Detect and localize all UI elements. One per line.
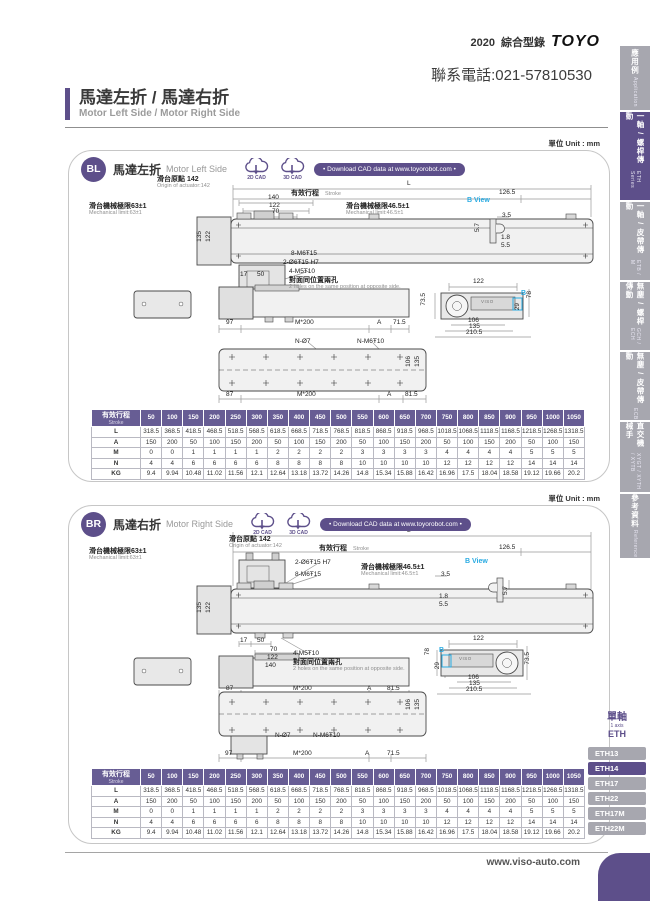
stroke-value: 50 <box>141 769 162 786</box>
dim-value: 718.5 <box>310 427 331 438</box>
dim-value: 10 <box>373 817 394 828</box>
dim-value: 100 <box>458 796 479 807</box>
stroke-value: 400 <box>288 410 309 427</box>
cad-2d-label: 2D CAD <box>253 530 272 536</box>
dim-value: 150 <box>225 796 246 807</box>
sidebar-tab-reference[interactable]: 參考資料 Reference <box>620 494 650 558</box>
dim-value: 968.5 <box>415 427 436 438</box>
dim-value: 200 <box>415 796 436 807</box>
page-title-en: Motor Left Side / Motor Right Side <box>79 108 240 120</box>
dim-value: 13.72 <box>310 828 331 839</box>
dim-value: 15.88 <box>394 828 415 839</box>
footer-divider <box>65 852 608 853</box>
table-row: KG9.49.9410.4811.0211.5612.112.6413.1813… <box>92 469 585 480</box>
row-label: N <box>92 458 141 469</box>
dim-value: 6 <box>183 458 204 469</box>
cad-3d-download[interactable]: 3D CAD <box>279 158 306 181</box>
dim-value: 200 <box>415 437 436 448</box>
dim-value: 100 <box>288 437 309 448</box>
panel-title-zh: 馬達左折 <box>113 161 161 178</box>
dim-value: 14 <box>563 817 584 828</box>
panel-title-zh: 馬達右折 <box>113 516 161 533</box>
dim-value: 50 <box>352 796 373 807</box>
corner-decoration <box>598 853 650 901</box>
dim-value: 12.1 <box>246 469 267 480</box>
dim-value: 0 <box>162 807 183 818</box>
cloud-download-icon <box>249 513 276 531</box>
stroke-value: 50 <box>141 410 162 427</box>
dim-value: 668.5 <box>288 427 309 438</box>
dim-value: 2 <box>310 448 331 459</box>
dim-value: 15.88 <box>394 469 415 480</box>
dim-value: 50 <box>436 796 457 807</box>
dim-value: 11.02 <box>204 469 225 480</box>
dim-value: 12 <box>500 458 521 469</box>
dim-value: 1318.5 <box>563 427 584 438</box>
contact-phone: 聯系電話:021-57810530 <box>431 64 592 85</box>
table-row: L318.5368.5418.5468.5518.5568.5618.5668.… <box>92 786 585 797</box>
panel-title-en: Motor Left Side <box>166 164 227 174</box>
dim-value: 150 <box>310 437 331 448</box>
dim-value: 2 <box>331 807 352 818</box>
dim-value: 4 <box>458 807 479 818</box>
series-item-eth22m[interactable]: ETH22M <box>588 822 646 835</box>
stroke-header: 有效行程Stroke <box>92 410 141 427</box>
dim-value: 8 <box>267 458 288 469</box>
stroke-value: 350 <box>267 769 288 786</box>
dim-value: 11.02 <box>204 828 225 839</box>
dim-value: 8 <box>288 458 309 469</box>
stroke-value: 750 <box>436 769 457 786</box>
dim-value: 12.64 <box>267 828 288 839</box>
dim-value: 14 <box>542 458 563 469</box>
cloud-download-icon <box>243 158 270 176</box>
cloud-download-icon <box>285 513 312 531</box>
dim-value: 200 <box>500 796 521 807</box>
dim-value: 18.04 <box>479 469 500 480</box>
dim-value: 10 <box>394 458 415 469</box>
dim-value: 1068.5 <box>458 427 479 438</box>
dim-value: 1118.5 <box>479 786 500 797</box>
dim-value: 200 <box>162 796 183 807</box>
dim-value: 568.5 <box>246 786 267 797</box>
dim-value: 200 <box>246 437 267 448</box>
dim-value: 4 <box>162 817 183 828</box>
catalog-page: 2020 綜合型錄 TOYO 聯系電話:021-57810530 馬達左折 / … <box>0 0 650 901</box>
cad-3d-download[interactable]: 3D CAD <box>285 513 312 536</box>
tab-label-zh: 參考資料 <box>630 494 641 528</box>
dim-value: 20.2 <box>563 469 584 480</box>
dim-value: 4 <box>162 458 183 469</box>
dim-value: 1218.5 <box>521 786 542 797</box>
dim-value: 11.56 <box>225 469 246 480</box>
dim-value: 2 <box>331 448 352 459</box>
dim-value: 4 <box>436 807 457 818</box>
website-url: www.viso-auto.com <box>420 857 580 868</box>
stroke-value: 300 <box>246 410 267 427</box>
dim-value: 200 <box>246 796 267 807</box>
dim-value: 4 <box>479 448 500 459</box>
dim-value: 4 <box>500 807 521 818</box>
dim-value: 150 <box>141 437 162 448</box>
stroke-value: 550 <box>352 769 373 786</box>
dim-value: 918.5 <box>394 786 415 797</box>
dim-value: 918.5 <box>394 427 415 438</box>
download-cad-pill[interactable]: • Download CAD data at www.toyorobot.com… <box>320 518 471 531</box>
tab-label-zh: 無塵 / 螺桿傳動 <box>624 282 646 326</box>
dim-value: 8 <box>331 817 352 828</box>
dim-value: 2 <box>267 448 288 459</box>
dim-value: 8 <box>331 458 352 469</box>
dim-value: 18.58 <box>500 828 521 839</box>
dim-value: 3 <box>373 807 394 818</box>
stroke-value: 500 <box>331 769 352 786</box>
dim-value: 6 <box>225 817 246 828</box>
dim-value: 1 <box>183 448 204 459</box>
dim-value: 718.5 <box>310 786 331 797</box>
dim-value: 150 <box>563 437 584 448</box>
dim-value: 100 <box>373 796 394 807</box>
dim-value: 13.72 <box>310 469 331 480</box>
tab-label-en: ETB / M <box>629 260 641 280</box>
dim-value: 5 <box>563 807 584 818</box>
dim-value: 11.56 <box>225 828 246 839</box>
br-stroke-table: 有效行程Stroke501001502002503003504004505005… <box>91 768 585 839</box>
dim-value: 8 <box>288 817 309 828</box>
table-row: N44666688881010101012121212141414 <box>92 458 585 469</box>
stroke-value: 800 <box>458 410 479 427</box>
dim-value: 13.18 <box>288 469 309 480</box>
series-item-eth22[interactable]: ETH22 <box>588 792 646 805</box>
catalog-title: 綜合型錄 <box>501 34 545 50</box>
stroke-value: 450 <box>310 769 331 786</box>
dim-value: 8 <box>310 458 331 469</box>
row-label: L <box>92 786 141 797</box>
dim-value: 1268.5 <box>542 786 563 797</box>
tab-label-en: XYGT / XYTH / XYTB <box>629 453 641 492</box>
dim-value: 10 <box>373 458 394 469</box>
row-label: M <box>92 448 141 459</box>
dim-value: 16.96 <box>436 469 457 480</box>
stroke-value: 850 <box>479 410 500 427</box>
br-badge: BR <box>81 512 106 537</box>
dim-value: 6 <box>183 817 204 828</box>
dim-value: 200 <box>331 796 352 807</box>
title-divider <box>65 127 608 128</box>
sidebar-tab-gch-ech[interactable]: 無塵 / 螺桿傳動 GCH / ECH <box>620 282 650 350</box>
stroke-value: 800 <box>458 769 479 786</box>
stroke-value: 700 <box>415 410 436 427</box>
panel-motor-left: BL 馬達左折 Motor Left Side 2D CAD <box>68 150 610 482</box>
tab-label-zh: 直交機械手 <box>624 422 646 451</box>
dim-value: 3 <box>373 448 394 459</box>
dim-value: 100 <box>204 437 225 448</box>
dim-value: 3 <box>352 448 373 459</box>
dim-value: 318.5 <box>141 786 162 797</box>
edition-year: 2020 <box>470 37 494 49</box>
dim-value: 8 <box>267 817 288 828</box>
stroke-value: 1000 <box>542 769 563 786</box>
dim-value: 18.58 <box>500 469 521 480</box>
dim-value: 13.18 <box>288 828 309 839</box>
dim-value: 518.5 <box>225 786 246 797</box>
dim-value: 12 <box>500 817 521 828</box>
dim-value: 150 <box>563 796 584 807</box>
axis-label-zh: 單軸 <box>588 712 646 723</box>
dim-value: 368.5 <box>162 786 183 797</box>
dim-value: 418.5 <box>183 786 204 797</box>
dim-value: 6 <box>246 458 267 469</box>
cad-links: 2D CAD 3D CAD <box>249 513 312 536</box>
dim-value: 10 <box>394 817 415 828</box>
dim-value: 5 <box>521 807 542 818</box>
dim-value: 10 <box>352 458 373 469</box>
dim-value: 50 <box>267 437 288 448</box>
dim-value: 16.42 <box>415 469 436 480</box>
dim-value: 14.26 <box>331 828 352 839</box>
table-row: L318.5368.5418.5468.5518.5568.5618.5668.… <box>92 427 585 438</box>
dim-value: 15.34 <box>373 469 394 480</box>
dim-value: 1118.5 <box>479 427 500 438</box>
dim-value: 50 <box>267 796 288 807</box>
dim-value: 468.5 <box>204 786 225 797</box>
dim-value: 100 <box>373 437 394 448</box>
dim-value: 200 <box>331 437 352 448</box>
dim-value: 16.42 <box>415 828 436 839</box>
dim-value: 6 <box>246 817 267 828</box>
series-item-eth17[interactable]: ETH17 <box>588 777 646 790</box>
dim-value: 1 <box>246 807 267 818</box>
dim-value: 0 <box>141 448 162 459</box>
dim-value: 9.94 <box>162 469 183 480</box>
stroke-value: 900 <box>500 410 521 427</box>
dim-value: 19.66 <box>542 469 563 480</box>
dim-value: 4 <box>436 448 457 459</box>
cad-3d-label: 3D CAD <box>289 530 308 536</box>
dim-value: 16.96 <box>436 828 457 839</box>
dim-value: 1 <box>204 807 225 818</box>
dim-value: 12.1 <box>246 828 267 839</box>
dim-value: 50 <box>436 437 457 448</box>
dim-value: 868.5 <box>373 427 394 438</box>
dim-value: 1318.5 <box>563 786 584 797</box>
stroke-value: 650 <box>394 410 415 427</box>
dim-value: 150 <box>141 796 162 807</box>
dim-value: 50 <box>521 437 542 448</box>
dim-value: 100 <box>458 437 479 448</box>
stroke-value: 100 <box>162 769 183 786</box>
dim-value: 20.2 <box>563 828 584 839</box>
cad-links: 2D CAD 3D CAD <box>243 158 306 181</box>
tab-label-en: GCH / ECH <box>629 328 641 350</box>
stroke-value: 300 <box>246 769 267 786</box>
dim-value: 2 <box>288 807 309 818</box>
tab-label-en: Reference <box>632 530 638 558</box>
dim-value: 5 <box>563 448 584 459</box>
toyo-logo: TOYO <box>551 33 600 51</box>
tab-label-zh: 無塵 / 皮帶傳動 <box>624 352 646 406</box>
stroke-value: 200 <box>204 410 225 427</box>
dim-value: 3 <box>415 448 436 459</box>
dim-value: 14 <box>521 458 542 469</box>
dim-value: 1168.5 <box>500 427 521 438</box>
dim-value: 9.4 <box>141 828 162 839</box>
stroke-value: 150 <box>183 410 204 427</box>
stroke-value: 900 <box>500 769 521 786</box>
dim-value: 12 <box>458 458 479 469</box>
dim-value: 100 <box>542 437 563 448</box>
dim-value: 10 <box>415 458 436 469</box>
dim-value: 10 <box>352 817 373 828</box>
dim-value: 6 <box>225 458 246 469</box>
table-row: KG9.49.9410.4811.0211.5612.112.6413.1813… <box>92 828 585 839</box>
dim-value: 3 <box>415 807 436 818</box>
table-row: A150200501001502005010015020050100150200… <box>92 796 585 807</box>
dim-value: 19.66 <box>542 828 563 839</box>
dim-value: 14 <box>521 817 542 828</box>
stroke-value: 650 <box>394 769 415 786</box>
stroke-value: 600 <box>373 769 394 786</box>
stroke-value: 1050 <box>563 769 584 786</box>
dim-value: 50 <box>521 796 542 807</box>
dim-value: 150 <box>479 796 500 807</box>
sidebar-tab-application[interactable]: 應用例 Application <box>620 46 650 110</box>
sidebar-tab-etb-m[interactable]: 一軸 / 皮帶傳動 ETB / M <box>620 202 650 280</box>
dim-value: 9.4 <box>141 469 162 480</box>
dim-value: 12 <box>479 458 500 469</box>
dim-value: 12 <box>479 817 500 828</box>
tab-label-en: ETH Series <box>629 171 641 200</box>
dim-value: 0 <box>141 807 162 818</box>
sidebar-tab-eth-series[interactable]: 一軸 / 螺桿傳動 ETH Series <box>620 112 650 200</box>
stroke-value: 950 <box>521 769 542 786</box>
dim-value: 4 <box>479 807 500 818</box>
page-title: 馬達左折 / 馬達右折 Motor Left Side / Motor Righ… <box>65 88 240 120</box>
dim-value: 17.5 <box>458 828 479 839</box>
dim-value: 768.5 <box>331 786 352 797</box>
dim-value: 200 <box>162 437 183 448</box>
dim-value: 14 <box>542 817 563 828</box>
cad-2d-download[interactable]: 2D CAD <box>243 158 270 181</box>
series-nav-header: 單軸 1 axis ETH <box>588 712 646 739</box>
tab-label-zh: 一軸 / 螺桿傳動 <box>624 112 646 169</box>
dim-value: 4 <box>141 817 162 828</box>
series-item-eth14[interactable]: ETH14 <box>588 762 646 775</box>
row-label: KG <box>92 828 141 839</box>
dim-value: 18.04 <box>479 828 500 839</box>
dim-value: 100 <box>288 796 309 807</box>
dim-value: 0 <box>162 448 183 459</box>
dim-value: 12 <box>436 817 457 828</box>
dim-value: 100 <box>542 796 563 807</box>
dim-value: 5 <box>542 807 563 818</box>
row-label: KG <box>92 469 141 480</box>
dim-value: 1018.5 <box>436 427 457 438</box>
dim-value: 1 <box>246 448 267 459</box>
dim-value: 15.34 <box>373 828 394 839</box>
table-row: M001111222233334444555 <box>92 807 585 818</box>
stroke-value: 250 <box>225 769 246 786</box>
sidebar-tab-ecb[interactable]: 無塵 / 皮帶傳動 ECB <box>620 352 650 420</box>
download-cad-pill[interactable]: • Download CAD data at www.toyorobot.com… <box>314 163 465 176</box>
dim-value: 100 <box>204 796 225 807</box>
page-title-zh: 馬達左折 / 馬達右折 <box>79 88 240 108</box>
dim-value: 368.5 <box>162 427 183 438</box>
dim-value: 19.12 <box>521 469 542 480</box>
dim-value: 10 <box>415 817 436 828</box>
dim-value: 318.5 <box>141 427 162 438</box>
dim-value: 818.5 <box>352 427 373 438</box>
dim-value: 9.94 <box>162 828 183 839</box>
dim-value: 1 <box>204 448 225 459</box>
dim-value: 1 <box>183 807 204 818</box>
stroke-header: 有效行程Stroke <box>92 769 141 786</box>
dim-value: 150 <box>310 796 331 807</box>
stroke-value: 500 <box>331 410 352 427</box>
stroke-value: 1000 <box>542 410 563 427</box>
dim-value: 1018.5 <box>436 786 457 797</box>
tab-label-en: Application <box>632 77 638 107</box>
stroke-value: 850 <box>479 769 500 786</box>
series-item-eth13[interactable]: ETH13 <box>588 747 646 760</box>
cad-2d-download[interactable]: 2D CAD <box>249 513 276 536</box>
tab-label-en: ECB <box>632 408 638 420</box>
stroke-value: 450 <box>310 410 331 427</box>
dim-value: 1268.5 <box>542 427 563 438</box>
dim-value: 17.5 <box>458 469 479 480</box>
dim-value: 2 <box>267 807 288 818</box>
dim-value: 150 <box>479 437 500 448</box>
dim-value: 10.48 <box>183 828 204 839</box>
dim-value: 968.5 <box>415 786 436 797</box>
dim-value: 1168.5 <box>500 786 521 797</box>
panel-motor-right: BR 馬達右折 Motor Right Side 2D CAD <box>68 505 610 844</box>
series-item-eth17m[interactable]: ETH17M <box>588 807 646 820</box>
dim-value: 12 <box>458 817 479 828</box>
dim-value: 768.5 <box>331 427 352 438</box>
row-label: A <box>92 796 141 807</box>
dim-value: 150 <box>394 437 415 448</box>
panel-header-br: BR 馬達右折 Motor Right Side 2D CAD <box>81 511 471 537</box>
dim-value: 668.5 <box>288 786 309 797</box>
stroke-value: 550 <box>352 410 373 427</box>
unit-label-br: 單位 Unit : mm <box>548 493 600 504</box>
row-label: A <box>92 437 141 448</box>
row-label: M <box>92 807 141 818</box>
dim-value: 5 <box>521 448 542 459</box>
dim-value: 518.5 <box>225 427 246 438</box>
dim-value: 1 <box>225 807 246 818</box>
sidebar-tab-xy-robots[interactable]: 直交機械手 XYGT / XYTH / XYTB <box>620 422 650 492</box>
dim-value: 1218.5 <box>521 427 542 438</box>
table-row: M001111222233334444555 <box>92 448 585 459</box>
panel-title-en: Motor Right Side <box>166 519 233 529</box>
row-label: N <box>92 817 141 828</box>
dim-value: 4 <box>500 448 521 459</box>
bl-badge: BL <box>81 157 106 182</box>
dim-value: 14.26 <box>331 469 352 480</box>
dim-value: 10.48 <box>183 469 204 480</box>
dim-value: 1 <box>225 448 246 459</box>
dim-value: 1068.5 <box>458 786 479 797</box>
series-label: ETH <box>588 729 646 739</box>
dim-value: 5 <box>542 448 563 459</box>
dim-value: 868.5 <box>373 786 394 797</box>
dim-value: 3 <box>352 807 373 818</box>
dim-value: 2 <box>310 807 331 818</box>
dim-value: 150 <box>225 437 246 448</box>
dim-value: 6 <box>204 817 225 828</box>
